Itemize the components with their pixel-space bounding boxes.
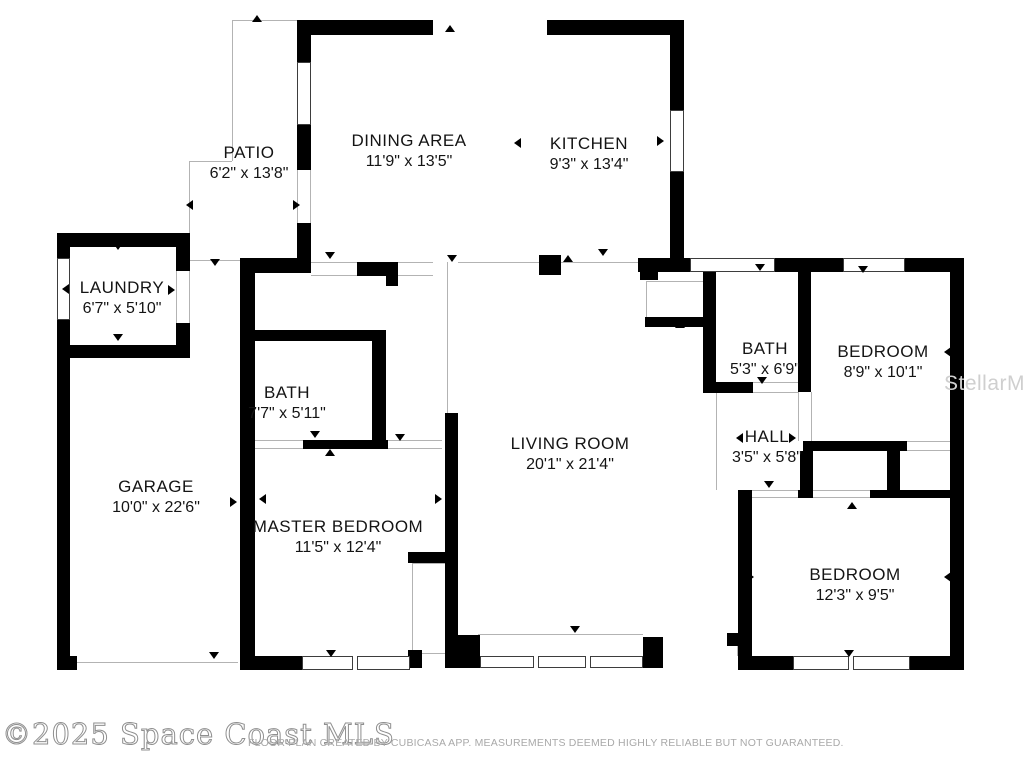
wall: [547, 20, 684, 35]
wall: [240, 656, 302, 670]
room-dimensions: 7'7" x 5'11": [248, 405, 326, 423]
wall: [245, 438, 253, 448]
opening-line: [458, 262, 539, 263]
window-mullion: [352, 656, 358, 670]
opening-line: [189, 161, 190, 233]
wall: [670, 20, 684, 110]
opening-line: [232, 20, 233, 161]
opening-line: [412, 563, 445, 564]
door-direction-marker: [764, 481, 774, 491]
room-dimensions: 6'2" x 13'8": [210, 165, 289, 183]
opening-line: [646, 281, 703, 282]
room-dimensions: 12'3" x 9'5": [809, 587, 900, 605]
opening-line: [388, 448, 442, 449]
wall: [539, 255, 561, 275]
wall: [176, 233, 190, 271]
door-direction-marker: [210, 259, 220, 269]
door-direction-marker: [941, 572, 951, 582]
wall: [357, 262, 398, 276]
room-label-living-room: LIVING ROOM 20'1" x 21'4": [511, 434, 630, 474]
cubicasa-disclaimer-text: FLOOR PLAN CREATED BY CUBICASA APP. MEAS…: [248, 737, 844, 749]
room-label-bath-hall: BATH 5'3" x 6'9": [730, 339, 800, 379]
wall: [297, 20, 433, 35]
room-dimensions: 10'0" x 22'6": [112, 499, 200, 517]
room-dimensions: 9'3" x 13'4": [550, 156, 629, 174]
door-direction-marker: [657, 136, 667, 146]
opening-line: [398, 262, 433, 263]
opening-line: [176, 271, 177, 323]
room-name: KITCHEN: [550, 134, 629, 154]
wall: [643, 637, 663, 668]
door-direction-marker: [858, 266, 868, 276]
opening-line: [189, 271, 190, 323]
wall: [738, 656, 793, 670]
wall: [448, 635, 480, 668]
door-direction-marker: [293, 200, 303, 210]
door-direction-marker: [230, 497, 240, 507]
window: [670, 110, 684, 172]
window: [843, 258, 905, 272]
wall: [870, 490, 964, 498]
door-direction-marker: [310, 431, 320, 441]
wall: [408, 650, 422, 668]
door-direction-marker: [209, 652, 219, 662]
room-label-master-bedroom: MASTER BEDROOM 11'5" x 12'4": [253, 517, 423, 557]
room-dimensions: 3'5" x 5'8": [732, 449, 802, 467]
room-name: BATH: [730, 339, 800, 359]
room-label-patio: PATIO 6'2" x 13'8": [210, 143, 289, 183]
window: [480, 656, 643, 668]
wall: [645, 317, 703, 327]
room-label-laundry: LAUNDRY 6'7" x 5'10": [80, 278, 164, 318]
opening-line: [253, 448, 303, 449]
wall: [176, 323, 190, 358]
wall: [297, 223, 311, 262]
opening-line: [311, 275, 357, 276]
room-label-dining-area: DINING AREA 11'9" x 13'5": [351, 131, 466, 171]
opening-line: [752, 490, 798, 491]
opening-line: [907, 441, 950, 442]
wall: [727, 633, 738, 646]
door-direction-marker: [113, 243, 123, 253]
wall: [372, 341, 386, 440]
room-dimensions: 20'1" x 21'4": [511, 456, 630, 474]
opening-line: [716, 393, 717, 490]
door-direction-marker: [435, 494, 445, 504]
wall: [57, 233, 70, 260]
wall: [910, 656, 964, 670]
wall: [386, 276, 398, 286]
door-direction-marker: [256, 494, 266, 504]
door-direction-marker: [597, 22, 607, 32]
room-label-hall: HALL 3'5" x 5'8": [732, 427, 802, 467]
room-label-bedroom-2: BEDROOM 12'3" x 9'5": [809, 565, 900, 605]
door-direction-marker: [755, 264, 765, 274]
wall: [297, 125, 311, 170]
door-direction-marker: [326, 650, 336, 660]
opening-line: [907, 450, 950, 451]
wall: [297, 35, 311, 62]
room-dimensions: 11'9" x 13'5": [351, 153, 466, 171]
room-name: LAUNDRY: [80, 278, 164, 298]
room-label-bedroom-1: BEDROOM 8'9" x 10'1": [837, 342, 928, 382]
window-mullion: [533, 656, 539, 668]
wall: [670, 172, 684, 262]
stellar-mls-watermark: StellarMLS: [944, 372, 1024, 396]
room-name: BEDROOM: [809, 565, 900, 585]
window-mullion: [585, 656, 591, 668]
door-direction-marker: [59, 497, 69, 507]
room-name: BEDROOM: [837, 342, 928, 362]
wall: [640, 267, 658, 280]
door-direction-marker: [844, 650, 854, 660]
door-direction-marker: [252, 12, 262, 22]
opening-line: [561, 262, 638, 263]
window: [297, 62, 311, 125]
opening-line: [422, 653, 445, 654]
wall: [57, 318, 70, 670]
room-dimensions: 11'5" x 12'4": [253, 539, 423, 557]
opening-line: [72, 662, 238, 663]
opening-line: [478, 634, 643, 635]
opening-line: [297, 170, 298, 223]
door-direction-marker: [395, 434, 405, 444]
wall: [57, 656, 77, 670]
opening-line: [232, 20, 297, 21]
wall: [887, 450, 900, 492]
wall: [240, 330, 386, 341]
door-direction-marker: [183, 200, 193, 210]
door-direction-marker: [563, 252, 573, 262]
floor-plan: PATIO 6'2" x 13'8" DINING AREA 11'9" x 1…: [0, 0, 1024, 768]
opening-line: [311, 262, 357, 263]
room-label-garage: GARAGE 10'0" x 22'6": [112, 477, 200, 517]
door-direction-marker: [570, 626, 580, 636]
room-dimensions: 5'3" x 6'9": [730, 361, 800, 379]
door-direction-marker: [113, 334, 123, 344]
room-name: PATIO: [210, 143, 289, 163]
opening-line: [753, 392, 798, 393]
wall: [240, 258, 255, 670]
door-direction-marker: [847, 499, 857, 509]
room-dimensions: 8'9" x 10'1": [837, 364, 928, 382]
wall: [445, 413, 458, 668]
opening-line: [752, 497, 798, 498]
door-direction-marker: [747, 572, 757, 582]
room-name: GARAGE: [112, 477, 200, 497]
room-name: DINING AREA: [351, 131, 466, 151]
room-dimensions: 6'7" x 5'10": [80, 300, 164, 318]
door-direction-marker: [675, 318, 685, 328]
opening-line: [811, 392, 812, 441]
door-direction-marker: [325, 252, 335, 262]
opening-line: [310, 170, 311, 223]
wall: [57, 233, 190, 247]
door-direction-marker: [445, 22, 455, 32]
wall: [798, 490, 813, 498]
opening-line: [412, 563, 413, 650]
opening-line: [813, 497, 870, 498]
wall: [57, 345, 190, 358]
wall: [703, 267, 716, 393]
opening-line: [813, 490, 870, 491]
wall: [950, 258, 964, 670]
room-label-kitchen: KITCHEN 9'3" x 13'4": [550, 134, 629, 174]
door-direction-marker: [511, 138, 521, 148]
opening-line: [646, 281, 647, 317]
wall: [703, 382, 753, 393]
room-name: BATH: [248, 383, 326, 403]
opening-line: [398, 275, 433, 276]
door-direction-marker: [59, 284, 69, 294]
room-label-bath-master: BATH 7'7" x 5'11": [248, 383, 326, 423]
wall: [303, 440, 388, 449]
opening-line: [253, 440, 303, 441]
door-direction-marker: [447, 255, 457, 265]
room-name: HALL: [732, 427, 802, 447]
room-name: MASTER BEDROOM: [253, 517, 423, 537]
room-name: LIVING ROOM: [511, 434, 630, 454]
wall: [240, 258, 311, 273]
door-direction-marker: [325, 446, 335, 456]
door-direction-marker: [941, 347, 951, 357]
door-direction-marker: [168, 285, 178, 295]
door-direction-marker: [598, 249, 608, 259]
